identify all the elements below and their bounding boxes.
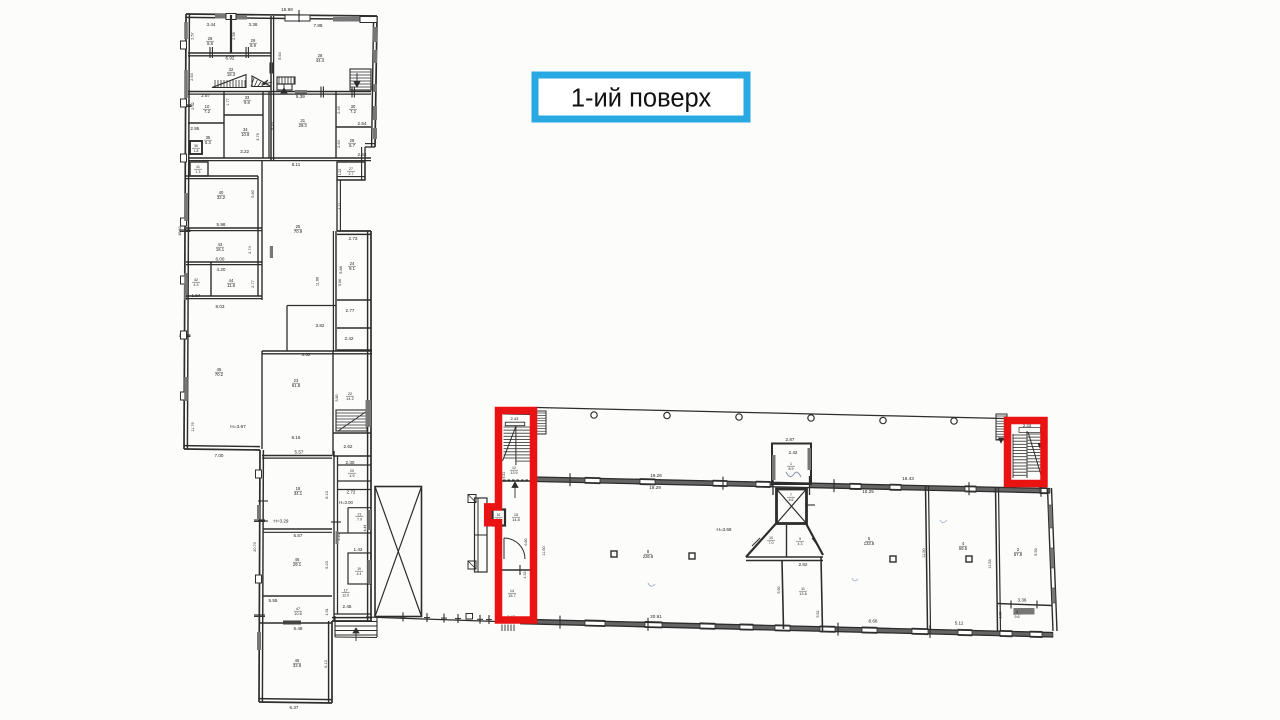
svg-text:2.54: 2.54 bbox=[358, 121, 367, 126]
svg-text:3.36: 3.36 bbox=[1018, 598, 1027, 603]
svg-text:7.88: 7.88 bbox=[314, 23, 323, 28]
svg-text:5.57: 5.57 bbox=[295, 450, 304, 455]
svg-text:19.26: 19.26 bbox=[650, 473, 662, 478]
svg-text:8.8: 8.8 bbox=[207, 41, 213, 46]
svg-text:4.44: 4.44 bbox=[363, 525, 367, 532]
svg-text:5.66: 5.66 bbox=[338, 279, 342, 286]
svg-text:18.3: 18.3 bbox=[227, 72, 236, 77]
svg-text:2.87: 2.87 bbox=[786, 437, 795, 442]
svg-text:11.53: 11.53 bbox=[988, 559, 992, 568]
svg-text:2.45: 2.45 bbox=[343, 604, 352, 609]
svg-text:36.62: 36.62 bbox=[178, 226, 182, 236]
svg-text:27: 27 bbox=[349, 167, 353, 171]
svg-text:1.22: 1.22 bbox=[338, 169, 342, 176]
svg-text:7: 7 bbox=[790, 493, 792, 497]
svg-text:4.3: 4.3 bbox=[194, 283, 199, 287]
svg-text:5.50: 5.50 bbox=[777, 587, 781, 594]
svg-text:8.68: 8.68 bbox=[869, 619, 878, 624]
svg-text:5.80: 5.80 bbox=[335, 395, 339, 402]
svg-text:3.79: 3.79 bbox=[256, 133, 260, 140]
svg-text:2.64: 2.64 bbox=[337, 140, 341, 147]
svg-text:2.77: 2.77 bbox=[251, 280, 255, 287]
svg-text:9.50: 9.50 bbox=[1034, 548, 1038, 555]
svg-text:2.73: 2.73 bbox=[349, 236, 358, 241]
svg-text:4.4: 4.4 bbox=[357, 572, 362, 576]
svg-text:H=3.29: H=3.29 bbox=[274, 519, 289, 524]
svg-text:2.77: 2.77 bbox=[346, 308, 355, 313]
svg-text:2.57: 2.57 bbox=[191, 32, 195, 39]
svg-text:4.20: 4.20 bbox=[217, 267, 226, 272]
svg-text:9.1: 9.1 bbox=[349, 266, 355, 271]
svg-text:1.54: 1.54 bbox=[192, 293, 201, 298]
svg-text:4.33: 4.33 bbox=[523, 572, 527, 579]
svg-text:10.8: 10.8 bbox=[294, 612, 301, 616]
svg-text:5.88: 5.88 bbox=[339, 266, 343, 273]
svg-text:H=3.69: H=3.69 bbox=[717, 527, 732, 532]
svg-text:11: 11 bbox=[801, 587, 805, 591]
svg-text:29.3: 29.3 bbox=[299, 123, 308, 128]
svg-text:12: 12 bbox=[512, 466, 516, 470]
svg-text:17: 17 bbox=[344, 589, 348, 593]
svg-text:19: 19 bbox=[357, 567, 361, 571]
svg-text:15.99: 15.99 bbox=[281, 7, 293, 12]
svg-text:11.8: 11.8 bbox=[227, 283, 236, 288]
svg-text:3.82: 3.82 bbox=[316, 323, 325, 328]
svg-text:7.2: 7.2 bbox=[350, 109, 356, 114]
svg-text:29.1: 29.1 bbox=[293, 562, 302, 567]
svg-text:21: 21 bbox=[358, 513, 362, 517]
svg-text:14: 14 bbox=[510, 589, 514, 593]
svg-text:16: 16 bbox=[497, 513, 501, 517]
svg-text:2.82: 2.82 bbox=[799, 562, 808, 567]
svg-text:19.29: 19.29 bbox=[649, 485, 661, 490]
svg-text:6.11: 6.11 bbox=[292, 162, 301, 167]
svg-text:2.42: 2.42 bbox=[345, 336, 354, 341]
svg-text:41: 41 bbox=[196, 165, 200, 169]
svg-text:2.64: 2.64 bbox=[190, 73, 194, 80]
svg-text:32.2: 32.2 bbox=[217, 195, 226, 200]
svg-text:2.7: 2.7 bbox=[349, 172, 354, 176]
svg-text:70.9: 70.9 bbox=[294, 229, 303, 234]
svg-text:5.64: 5.64 bbox=[278, 52, 282, 59]
svg-text:7.2: 7.2 bbox=[204, 109, 210, 114]
svg-text:6.00: 6.00 bbox=[216, 257, 225, 262]
svg-text:2.56: 2.56 bbox=[232, 32, 236, 39]
svg-text:22: 22 bbox=[348, 392, 352, 396]
svg-text:20.70: 20.70 bbox=[253, 542, 257, 552]
svg-text:8.16: 8.16 bbox=[292, 435, 301, 440]
svg-text:42: 42 bbox=[194, 278, 198, 282]
svg-text:5.3: 5.3 bbox=[205, 140, 211, 145]
svg-text:1.8: 1.8 bbox=[194, 149, 199, 153]
svg-text:6.92: 6.92 bbox=[226, 56, 235, 61]
svg-text:1.80: 1.80 bbox=[999, 612, 1003, 619]
svg-text:1.77: 1.77 bbox=[226, 98, 230, 105]
svg-text:61.8: 61.8 bbox=[292, 383, 301, 388]
svg-text:2.52: 2.52 bbox=[191, 102, 195, 109]
svg-text:6.13: 6.13 bbox=[324, 660, 328, 667]
svg-text:15.7: 15.7 bbox=[508, 594, 515, 598]
svg-text:2.42: 2.42 bbox=[789, 450, 798, 455]
svg-text:5.98: 5.98 bbox=[217, 222, 226, 227]
svg-text:13.8: 13.8 bbox=[799, 592, 806, 596]
svg-text:36: 36 bbox=[194, 144, 198, 148]
svg-text:6.37: 6.37 bbox=[290, 705, 299, 710]
svg-text:2.74: 2.74 bbox=[248, 246, 252, 253]
svg-text:6.13: 6.13 bbox=[325, 491, 329, 498]
svg-text:7.00: 7.00 bbox=[215, 453, 224, 458]
svg-text:4.9: 4.9 bbox=[350, 474, 355, 478]
svg-text:1.3: 1.3 bbox=[196, 170, 201, 174]
svg-text:5.31: 5.31 bbox=[502, 472, 506, 479]
svg-text:4.3: 4.3 bbox=[798, 542, 803, 546]
svg-text:34.1: 34.1 bbox=[294, 491, 303, 496]
svg-text:8.9: 8.9 bbox=[789, 467, 794, 471]
svg-text:2.53: 2.53 bbox=[358, 152, 367, 157]
svg-text:3: 3 bbox=[1016, 610, 1018, 614]
svg-text:4.11: 4.11 bbox=[338, 202, 342, 209]
svg-text:47: 47 bbox=[296, 607, 300, 611]
svg-text:16.1: 16.1 bbox=[216, 247, 225, 252]
svg-text:9: 9 bbox=[799, 537, 801, 541]
svg-text:6.80: 6.80 bbox=[524, 539, 528, 546]
svg-text:1.91: 1.91 bbox=[325, 609, 329, 616]
svg-text:10.25: 10.25 bbox=[862, 489, 874, 494]
svg-text:2.72: 2.72 bbox=[347, 490, 356, 495]
svg-text:2.95: 2.95 bbox=[190, 126, 199, 131]
svg-text:3.22: 3.22 bbox=[240, 149, 249, 154]
svg-text:14.2: 14.2 bbox=[346, 397, 353, 401]
svg-text:11.66: 11.66 bbox=[316, 277, 320, 286]
svg-text:8.03: 8.03 bbox=[216, 304, 225, 309]
svg-text:70.2: 70.2 bbox=[215, 372, 224, 377]
svg-text:7.0: 7.0 bbox=[769, 541, 774, 545]
svg-text:226.8: 226.8 bbox=[643, 554, 654, 559]
svg-text:59.5: 59.5 bbox=[959, 546, 968, 551]
svg-text:1: 1 bbox=[790, 462, 792, 466]
svg-text:5.57: 5.57 bbox=[294, 533, 303, 538]
svg-text:11.50: 11.50 bbox=[542, 546, 546, 555]
svg-text:44.4: 44.4 bbox=[316, 58, 325, 63]
svg-text:H=3.67: H=3.67 bbox=[230, 424, 246, 430]
svg-text:2.30: 2.30 bbox=[346, 460, 355, 465]
svg-text:2.62: 2.62 bbox=[344, 444, 353, 449]
svg-text:2.49: 2.49 bbox=[337, 106, 341, 113]
svg-text:5.48: 5.48 bbox=[294, 626, 303, 631]
svg-text:11.79: 11.79 bbox=[191, 422, 195, 431]
svg-text:6.7: 6.7 bbox=[349, 143, 355, 148]
svg-text:20.91: 20.91 bbox=[650, 614, 662, 619]
svg-text:6.6: 6.6 bbox=[789, 498, 794, 502]
svg-text:57.8: 57.8 bbox=[1014, 552, 1023, 557]
svg-text:7.9: 7.9 bbox=[357, 518, 362, 522]
svg-text:5.44: 5.44 bbox=[271, 122, 275, 129]
svg-text:10.8: 10.8 bbox=[241, 132, 250, 137]
svg-text:5.55: 5.55 bbox=[269, 598, 278, 603]
svg-text:133.8: 133.8 bbox=[864, 541, 875, 546]
svg-text:2.43: 2.43 bbox=[511, 416, 520, 421]
svg-text:1-ий поверх: 1-ий поверх bbox=[571, 85, 712, 113]
svg-text:15: 15 bbox=[514, 513, 518, 517]
svg-text:10: 10 bbox=[769, 536, 773, 540]
svg-text:20: 20 bbox=[350, 469, 354, 473]
svg-text:H=3.00: H=3.00 bbox=[339, 500, 353, 505]
svg-text:5.52: 5.52 bbox=[816, 611, 820, 618]
svg-text:33.8: 33.8 bbox=[293, 663, 302, 668]
svg-text:5.11: 5.11 bbox=[955, 621, 964, 626]
svg-text:8.9: 8.9 bbox=[250, 43, 256, 48]
svg-text:9.6: 9.6 bbox=[1015, 615, 1020, 619]
svg-text:2.87: 2.87 bbox=[201, 93, 210, 98]
svg-text:5.60: 5.60 bbox=[251, 190, 255, 197]
svg-text:3.36: 3.36 bbox=[249, 22, 258, 27]
svg-text:5.23: 5.23 bbox=[325, 561, 329, 568]
svg-text:11.50: 11.50 bbox=[922, 548, 926, 557]
svg-text:16.43: 16.43 bbox=[902, 476, 914, 481]
svg-text:12.0: 12.0 bbox=[342, 594, 349, 598]
svg-text:5.39: 5.39 bbox=[296, 94, 305, 99]
svg-text:9.8: 9.8 bbox=[244, 100, 250, 105]
svg-text:3.44: 3.44 bbox=[207, 22, 216, 27]
svg-text:13.9: 13.9 bbox=[511, 471, 518, 475]
svg-text:14.8: 14.8 bbox=[512, 518, 519, 522]
svg-text:3.62: 3.62 bbox=[302, 352, 311, 357]
svg-text:1.42: 1.42 bbox=[354, 547, 363, 552]
